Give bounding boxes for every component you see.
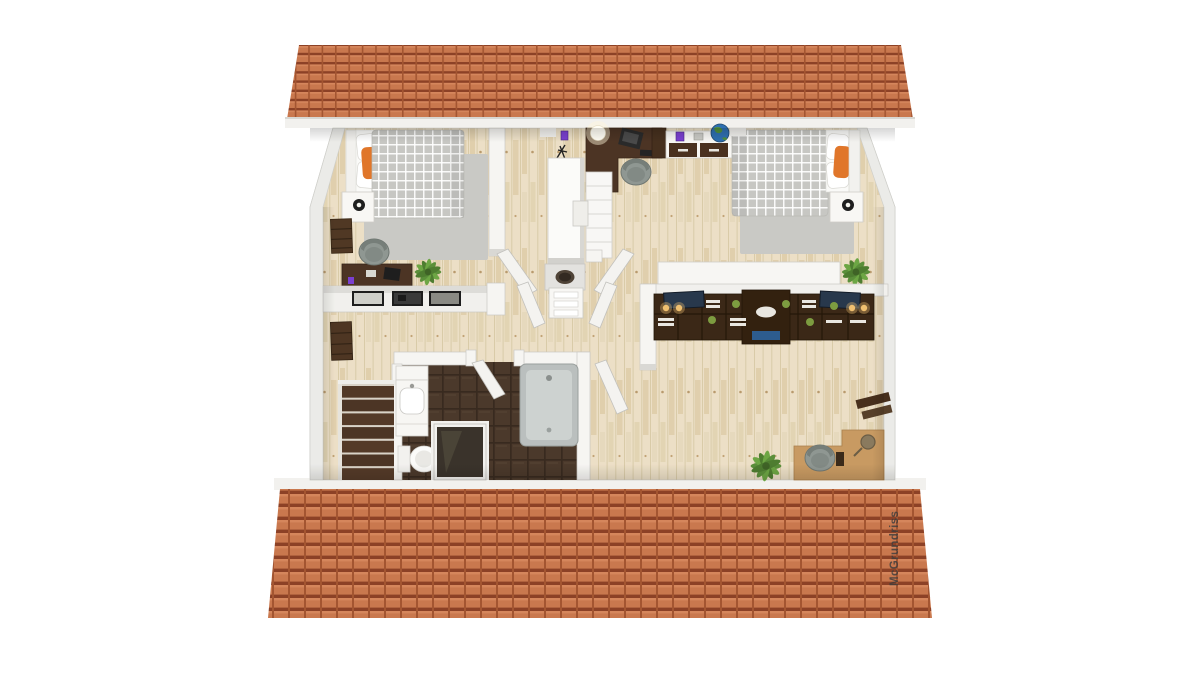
gadget-gray	[694, 133, 703, 140]
ceiling-lamp	[591, 126, 606, 141]
gadget-purple	[348, 277, 354, 284]
wall-jamb	[487, 283, 505, 315]
bed-headboard	[849, 130, 860, 194]
table-lamp	[353, 199, 365, 211]
hall-dresser	[586, 172, 612, 258]
faucet	[410, 384, 414, 388]
bedroom-desk	[342, 264, 412, 288]
wall-bathroom-right	[577, 352, 590, 480]
bathtub	[520, 364, 578, 446]
wall-bathroom-top-left	[394, 352, 470, 365]
dark-cabinet	[652, 128, 666, 158]
top-roof	[285, 45, 915, 128]
picture-half-wall	[323, 283, 505, 315]
decor-blue-box	[752, 331, 780, 340]
bottom-roof-slope	[268, 489, 932, 618]
stair-treads	[342, 384, 394, 480]
bed-duvet-plaid	[732, 130, 828, 216]
chimney	[545, 264, 585, 290]
gadget-purple	[676, 132, 684, 141]
skylight-window	[434, 424, 486, 480]
wall-bedroom-left	[489, 128, 505, 256]
floor-plan	[310, 121, 895, 482]
desk-item	[836, 452, 844, 466]
magnifier-lamp	[861, 435, 875, 449]
wall-stub	[730, 128, 746, 136]
watermark-text: McGrundriss	[889, 511, 901, 586]
wall-switch-purple	[561, 131, 568, 140]
table-lamp	[842, 199, 854, 211]
vanity-cabinet	[396, 366, 428, 380]
floorplan-svg: McGrundriss	[0, 0, 1200, 675]
accent-pillow-orange	[833, 145, 851, 178]
floorplan-render: McGrundriss	[0, 0, 1200, 675]
faucet	[546, 375, 552, 381]
door-jamb	[514, 350, 524, 366]
top-roof-slope	[287, 45, 913, 119]
picture-frames	[353, 292, 460, 305]
door-jamb	[586, 250, 602, 262]
desk-chair	[359, 239, 389, 265]
bed-headboard	[346, 130, 357, 194]
decor-bowl	[756, 307, 776, 318]
ladder-shelf	[330, 219, 352, 254]
desk-paper	[366, 270, 376, 277]
desk-laptop	[383, 267, 401, 281]
open-drawer	[573, 201, 588, 226]
wall-hall-right	[640, 284, 656, 370]
study-chair	[805, 445, 835, 471]
bottom-roof: McGrundriss	[268, 478, 932, 618]
landing-shelf	[549, 288, 583, 318]
ladder-shelf	[330, 322, 352, 361]
globe	[711, 124, 729, 142]
bookshelf-wall-unit	[654, 290, 874, 344]
wall-stub	[540, 128, 556, 137]
office-chair	[621, 159, 651, 185]
